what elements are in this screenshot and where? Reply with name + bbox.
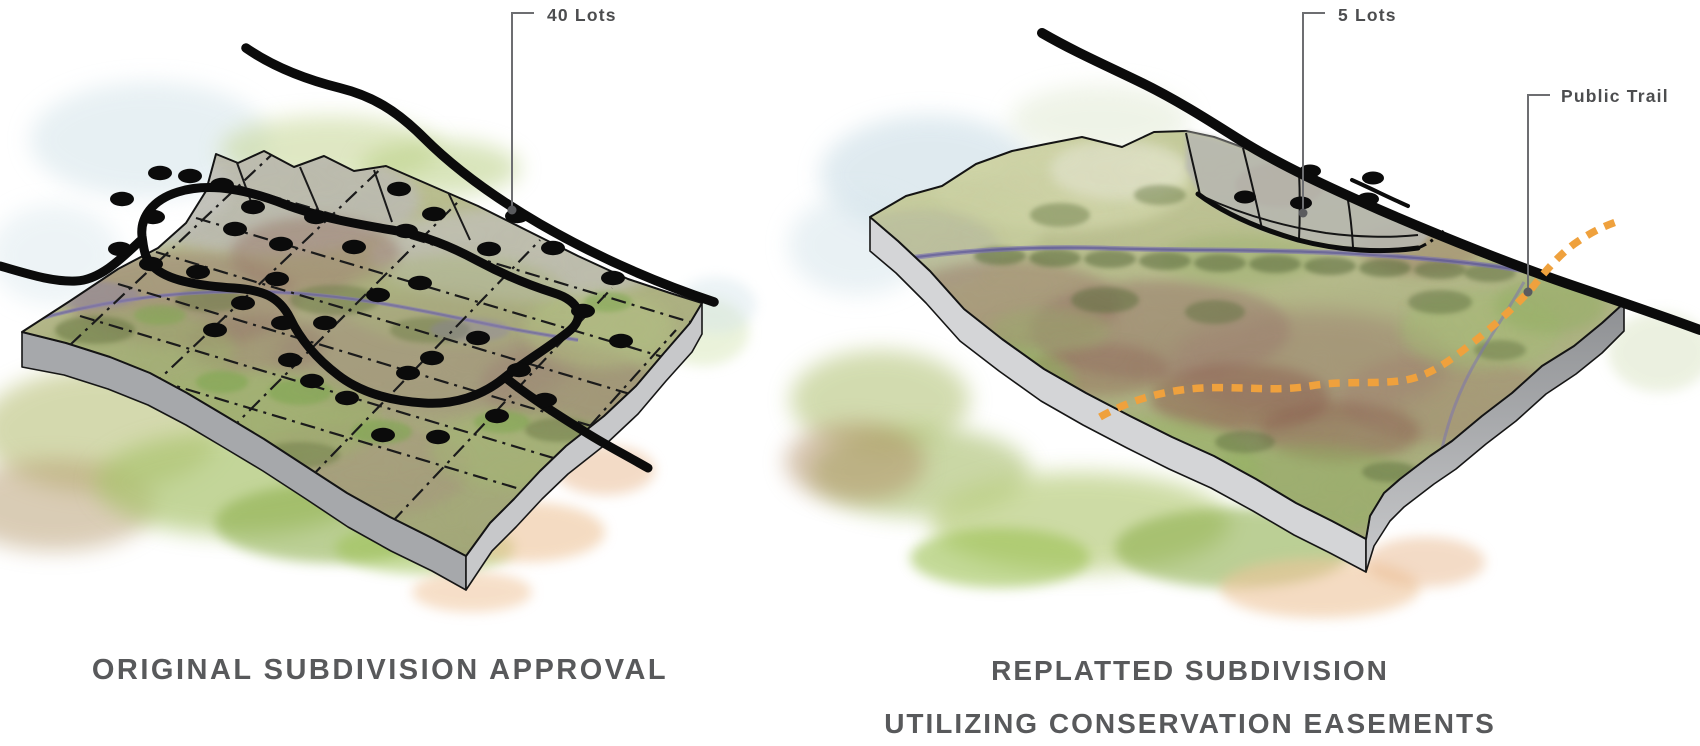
- replatted-subdivision-panel: 5 Lots Public Trail: [785, 5, 1700, 618]
- caption-replatted-line1: REPLATTED SUBDIVISION: [845, 644, 1535, 697]
- leader-line-40-lots: [512, 13, 534, 210]
- callout-40-lots: 40 Lots: [508, 5, 617, 215]
- caption-replatted-line2: UTILIZING CONSERVATION EASEMENTS: [845, 697, 1535, 746]
- callout-label-40-lots: 40 Lots: [547, 5, 617, 25]
- original-subdivision-panel: 40 Lots: [0, 5, 760, 612]
- leader-dot-5-lots: [1299, 209, 1308, 218]
- callout-public-trail: Public Trail: [1524, 86, 1669, 297]
- figure: 40 Lots: [0, 0, 1700, 746]
- comparison-illustration: 40 Lots: [0, 0, 1700, 746]
- leader-line-public-trail: [1528, 95, 1550, 292]
- callout-label-public-trail: Public Trail: [1561, 86, 1669, 106]
- caption-replatted: REPLATTED SUBDIVISION UTILIZING CONSERVA…: [845, 644, 1535, 746]
- leader-dot-40-lots: [508, 206, 517, 215]
- caption-original: ORIGINAL SUBDIVISION APPROVAL: [50, 644, 710, 697]
- callout-label-5-lots: 5 Lots: [1338, 5, 1397, 25]
- leader-dot-public-trail: [1524, 288, 1533, 297]
